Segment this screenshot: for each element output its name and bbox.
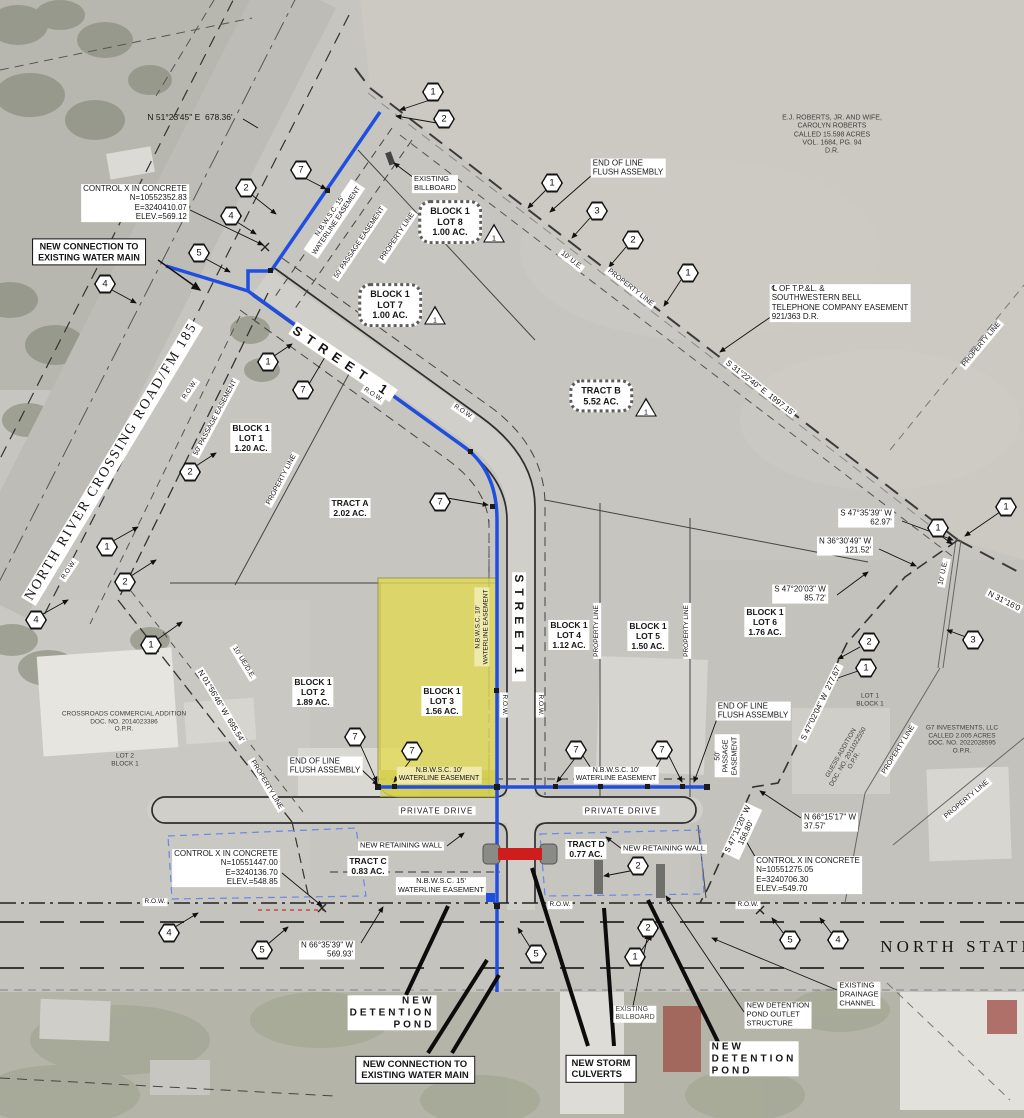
new-connection-top-label: NEW CONNECTION TO EXISTING WATER MAIN — [32, 238, 146, 265]
bearing-n363049-label: N 36°30'49" W 121.52' — [817, 537, 873, 556]
existing-billboard-bottom-label: EXISTING BILLBOARD — [613, 1006, 656, 1023]
bearing-n31160-label: N 31°16'0 — [984, 588, 1023, 614]
row-street-v1-label: R.O.W. — [500, 693, 508, 718]
property-line-g7-label: PROPERTY LINE — [941, 778, 992, 823]
labels-layer: N 51°23'45" E 678.36'CONTROL X IN CONCRE… — [0, 0, 1024, 1118]
keynote-7-hexagon: 7 — [565, 741, 587, 760]
control-x-bottom-right-label: CONTROL X IN CONCRETE N=10551275.05 E=32… — [754, 856, 862, 894]
bearing-s473539-label: S 47°35'39" W 62.97' — [838, 509, 894, 528]
keynote-number: 7 — [651, 741, 673, 760]
revision-number: 1 — [635, 407, 657, 416]
keynote-3-hexagon: 3 — [586, 202, 608, 221]
control-x-top-label: CONTROL X IN CONCRETE N=10552352.83 E=32… — [81, 184, 189, 222]
keynote-4-hexagon: 4 — [158, 924, 180, 943]
keynote-7-hexagon: 7 — [429, 493, 451, 512]
bearing-n663539-label: N 66°35'39" W 569.93' — [299, 941, 355, 960]
keynote-2-hexagon: 2 — [179, 463, 201, 482]
property-line-guess-label: PROPERTY LINE — [880, 722, 919, 777]
revision-triangle-icon: 1 — [483, 224, 505, 243]
keynote-1-hexagon: 1 — [855, 659, 877, 678]
crossroads-addition-label: CROSSROADS COMMERCIAL ADDITION DOC. NO. … — [62, 711, 186, 734]
street-1-vertical-label: STREET 1 — [512, 572, 526, 681]
row-hwy-mid-label: R.O.W. — [548, 901, 573, 909]
keynote-7-hexagon: 7 — [651, 741, 673, 760]
keynote-number: 1 — [624, 948, 646, 967]
keynote-number: 7 — [344, 728, 366, 747]
keynote-7-hexagon: 7 — [290, 161, 312, 180]
keynote-4-hexagon: 4 — [220, 207, 242, 226]
nbwsc-15-bottom-label: N.B.W.S.C. 15' WATERLINE EASEMENT — [396, 877, 486, 895]
bearing-n015646-label: N 01°56'46" W 695.54' — [195, 667, 248, 746]
keynote-1-hexagon: 1 — [624, 948, 646, 967]
keynote-3-hexagon: 3 — [962, 631, 984, 650]
keynote-2-hexagon: 2 — [627, 857, 649, 876]
block1-lot6-label: BLOCK 1 LOT 6 1.76 AC. — [744, 607, 785, 637]
property-line-right-top-label: PROPERTY LINE — [960, 319, 1005, 370]
keynote-1-hexagon: 1 — [422, 83, 444, 102]
keynote-number: 5 — [525, 945, 547, 964]
keynote-number: 4 — [94, 275, 116, 294]
keynote-number: 2 — [637, 919, 659, 938]
keynote-4-hexagon: 4 — [25, 611, 47, 630]
keynote-2-hexagon: 2 — [235, 179, 257, 198]
keynote-5-hexagon: 5 — [525, 945, 547, 964]
detention-outlet-label: NEW DETENTION POND OUTLET STRUCTURE — [745, 1002, 812, 1029]
control-x-bottom-left-label: CONTROL X IN CONCRETE N=10551447.00 E=32… — [172, 849, 280, 887]
keynote-5-hexagon: 5 — [188, 244, 210, 263]
ue-de-10-label: 10' UE/D.E. — [229, 644, 257, 683]
block1-lot3-label: BLOCK 1 LOT 3 1.56 AC. — [421, 686, 462, 716]
existing-drainage-label: EXISTING DRAINAGE CHANNEL — [837, 982, 880, 1009]
keynote-number: 3 — [962, 631, 984, 650]
property-line-ne-label: PROPERTY LINE — [604, 266, 656, 309]
nbwsc-10-right-label: N.B.W.S.C. 10' WATERLINE EASEMENT — [574, 767, 659, 784]
nbwsc-10-lot3-vert-label: N.B.W.S.C. 10' WATERLINE EASEMENT — [474, 588, 489, 667]
keynote-2-hexagon: 2 — [622, 231, 644, 250]
row-street-b-label: R.O.W. — [451, 402, 476, 422]
keynote-number: 1 — [927, 519, 949, 538]
retaining-wall-right-label: NEW RETAINING WALL — [621, 845, 707, 854]
keynote-1-hexagon: 1 — [677, 264, 699, 283]
keynote-7-hexagon: 7 — [401, 742, 423, 761]
bearing-s312240-label: S 31°22'40" E 1997.15' — [722, 357, 797, 419]
keynote-4-hexagon: 4 — [827, 931, 849, 950]
ue-10-right-label: 10' U.E. — [937, 558, 951, 588]
keynote-number: 1 — [855, 659, 877, 678]
detention-pond-left-label: NEW DETENTION POND — [348, 995, 437, 1030]
keynote-number: 7 — [401, 742, 423, 761]
nbwsc-10-left-label: N.B.W.S.C. 10' WATERLINE EASEMENT — [397, 767, 482, 784]
property-line-v1-label: PROPERTY LINE — [593, 603, 601, 659]
keynote-number: 7 — [292, 381, 314, 400]
row-street-v2-label: R.O.W. — [536, 693, 544, 718]
bearing-n512345-label: N 51°23'45" E 678.36' — [147, 112, 232, 122]
end-of-line-left-label: END OF LINE FLUSH ASSEMBLY — [288, 757, 363, 776]
north-state-road-label: NORTH STATE — [880, 937, 1024, 957]
lot2-block1-existing-label: LOT 2 BLOCK 1 — [111, 752, 138, 767]
keynote-1-hexagon: 1 — [927, 519, 949, 538]
keynote-2-hexagon: 2 — [114, 573, 136, 592]
tract-a-label: TRACT A 2.02 AC. — [330, 498, 371, 518]
keynote-number: 1 — [541, 174, 563, 193]
block1-lot5-label: BLOCK 1 LOT 5 1.50 AC. — [627, 621, 668, 651]
keynote-number: 7 — [565, 741, 587, 760]
property-line-top-label: PROPERTY LINE — [378, 210, 418, 264]
new-storm-culverts-label: NEW STORM CULVERTS — [566, 1055, 637, 1083]
north-river-crossing-road-label: NORTH RIVER CROSSING ROAD/FM 185 — [21, 318, 203, 605]
tract-c-label: TRACT C 0.83 AC. — [347, 856, 388, 876]
block1-lot7-label: BLOCK 1 LOT 7 1.00 AC. — [358, 283, 422, 327]
ej-roberts-tract-label: E.J. ROBERTS, JR. AND WIFE, CAROLYN ROBE… — [782, 114, 882, 155]
end-of-line-mid-label: END OF LINE FLUSH ASSEMBLY — [716, 702, 791, 721]
property-line-sw-label: PROPERTY LINE — [247, 757, 285, 812]
tract-d-label: TRACT D 0.77 AC. — [565, 839, 606, 859]
tract-b-label: TRACT B 5.52 AC. — [569, 379, 633, 412]
keynote-number: 1 — [257, 353, 279, 372]
end-of-line-top-label: END OF LINE FLUSH ASSEMBLY — [591, 159, 666, 178]
block1-lot1-label: BLOCK 1 LOT 1 1.20 AC. — [230, 423, 271, 453]
keynote-number: 4 — [25, 611, 47, 630]
keynote-5-hexagon: 5 — [251, 941, 273, 960]
site-plan-canvas: N 51°23'45" E 678.36'CONTROL X IN CONCRE… — [0, 0, 1024, 1118]
keynote-2-hexagon: 2 — [637, 919, 659, 938]
keynote-2-hexagon: 2 — [433, 110, 455, 129]
bearing-s472003-label: S 47°20'03" W 85.72' — [772, 585, 828, 604]
row-hwy-left-label: R.O.W. — [143, 898, 168, 906]
lot1-block1-existing-label: LOT 1 BLOCK 1 — [856, 692, 883, 707]
revision-number: 1 — [424, 315, 446, 324]
new-connection-bottom-label: NEW CONNECTION TO EXISTING WATER MAIN — [355, 1056, 475, 1084]
keynote-1-hexagon: 1 — [140, 636, 162, 655]
keynote-number: 2 — [858, 633, 880, 652]
keynote-number: 1 — [677, 264, 699, 283]
revision-triangle-icon: 1 — [424, 306, 446, 325]
keynote-number: 2 — [235, 179, 257, 198]
keynote-number: 2 — [622, 231, 644, 250]
keynote-number: 3 — [586, 202, 608, 221]
keynote-1-hexagon: 1 — [257, 353, 279, 372]
keynote-number: 1 — [140, 636, 162, 655]
property-line-v2-label: PROPERTY LINE — [683, 603, 691, 659]
retaining-wall-left-label: NEW RETAINING WALL — [358, 842, 444, 851]
row-nrc-a-label: R.O.W. — [180, 378, 200, 403]
keynote-number: 1 — [422, 83, 444, 102]
keynote-number: 1 — [995, 498, 1017, 517]
keynote-number: 4 — [158, 924, 180, 943]
bearing-n661517-label: N 66°15'17" W 37.57' — [802, 813, 858, 832]
keynote-number: 1 — [96, 538, 118, 557]
keynote-number: 2 — [433, 110, 455, 129]
keynote-number: 2 — [114, 573, 136, 592]
block1-lot4-label: BLOCK 1 LOT 4 1.12 AC. — [548, 620, 589, 650]
revision-triangle-icon: 1 — [635, 398, 657, 417]
keynote-1-hexagon: 1 — [541, 174, 563, 193]
keynote-number: 5 — [251, 941, 273, 960]
keynote-7-hexagon: 7 — [292, 381, 314, 400]
keynote-number: 7 — [290, 161, 312, 180]
block1-lot2-label: BLOCK 1 LOT 2 1.89 AC. — [292, 677, 333, 707]
keynote-number: 4 — [220, 207, 242, 226]
guess-addition-label: GUESS ADDITION DOC. NO. 2011022550 O.P.R… — [821, 722, 874, 792]
keynote-number: 5 — [188, 244, 210, 263]
private-drive-right-label: PRIVATE DRIVE — [583, 806, 660, 815]
g7-investments-label: G7 INVESTMENTS, LLC CALLED 2.005 ACRES D… — [926, 725, 998, 756]
keynote-2-hexagon: 2 — [858, 633, 880, 652]
keynote-number: 7 — [429, 493, 451, 512]
keynote-number: 2 — [179, 463, 201, 482]
existing-billboard-top-label: EXISTING BILLBOARD — [412, 175, 458, 193]
tpl-bell-easement-label: ℄ OF T.P.&L. & SOUTHWESTERN BELL TELEPHO… — [770, 284, 911, 322]
ue-10-ne-label: 10' U.E. — [557, 249, 585, 273]
row-hwy-right-label: R.O.W. — [736, 901, 761, 909]
revision-number: 1 — [483, 233, 505, 242]
keynote-number: 5 — [779, 931, 801, 950]
keynote-7-hexagon: 7 — [344, 728, 366, 747]
keynote-number: 4 — [827, 931, 849, 950]
keynote-number: 2 — [627, 857, 649, 876]
keynote-4-hexagon: 4 — [94, 275, 116, 294]
passage-easement-50-vert-label: 50' PASSAGE EASEMENT — [715, 735, 740, 778]
property-line-lot1-label: PROPERTY LINE — [264, 452, 299, 509]
keynote-5-hexagon: 5 — [779, 931, 801, 950]
detention-pond-right-label: NEW DETENTION POND — [710, 1041, 799, 1076]
bearing-s470204-label: S 47°02'04" W 277.67' — [798, 662, 844, 743]
keynote-1-hexagon: 1 — [96, 538, 118, 557]
block1-lot8-label: BLOCK 1 LOT 8 1.00 AC. — [418, 200, 482, 244]
bearing-s471120-label: S 47°11'20" W 156.80' — [722, 802, 762, 860]
private-drive-left-label: PRIVATE DRIVE — [399, 806, 476, 815]
keynote-1-hexagon: 1 — [995, 498, 1017, 517]
